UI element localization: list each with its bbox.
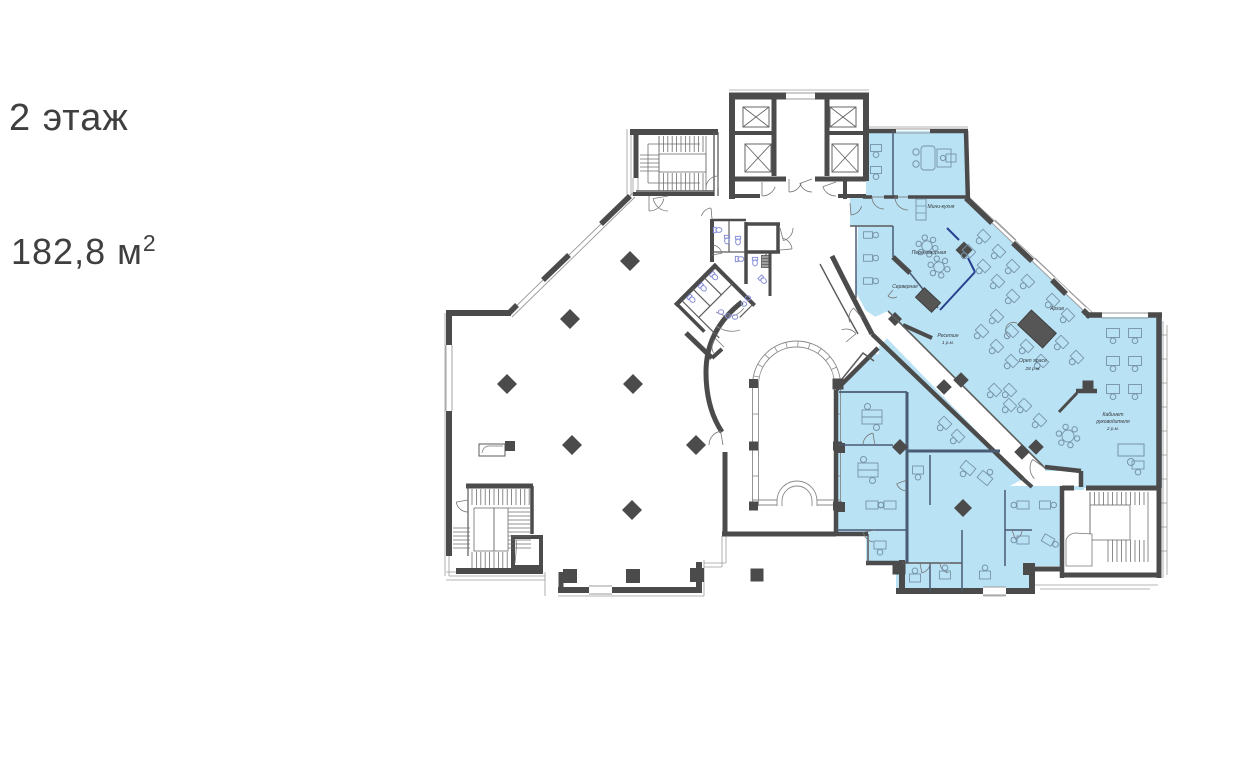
svg-text:182,8 м2: 182,8 м2 bbox=[11, 230, 157, 272]
svg-text:Open space: Open space bbox=[1019, 358, 1047, 364]
svg-text:2 этаж: 2 этаж bbox=[9, 97, 129, 139]
svg-text:Архив: Архив bbox=[1049, 306, 1064, 312]
svg-text:Ресепшн: Ресепшн bbox=[938, 333, 959, 339]
svg-text:2 р.м.: 2 р.м. bbox=[1106, 426, 1119, 431]
svg-text:Мини-кухня: Мини-кухня bbox=[928, 204, 955, 210]
svg-text:Серверная: Серверная bbox=[892, 284, 918, 290]
svg-text:1 р.м.: 1 р.м. bbox=[942, 340, 954, 345]
svg-text:28 р.м.: 28 р.м. bbox=[1024, 366, 1040, 372]
svg-text:руководителя: руководителя bbox=[1095, 419, 1130, 425]
svg-text:Переговорная: Переговорная bbox=[912, 250, 947, 256]
svg-text:Кабинет: Кабинет bbox=[1103, 412, 1124, 418]
